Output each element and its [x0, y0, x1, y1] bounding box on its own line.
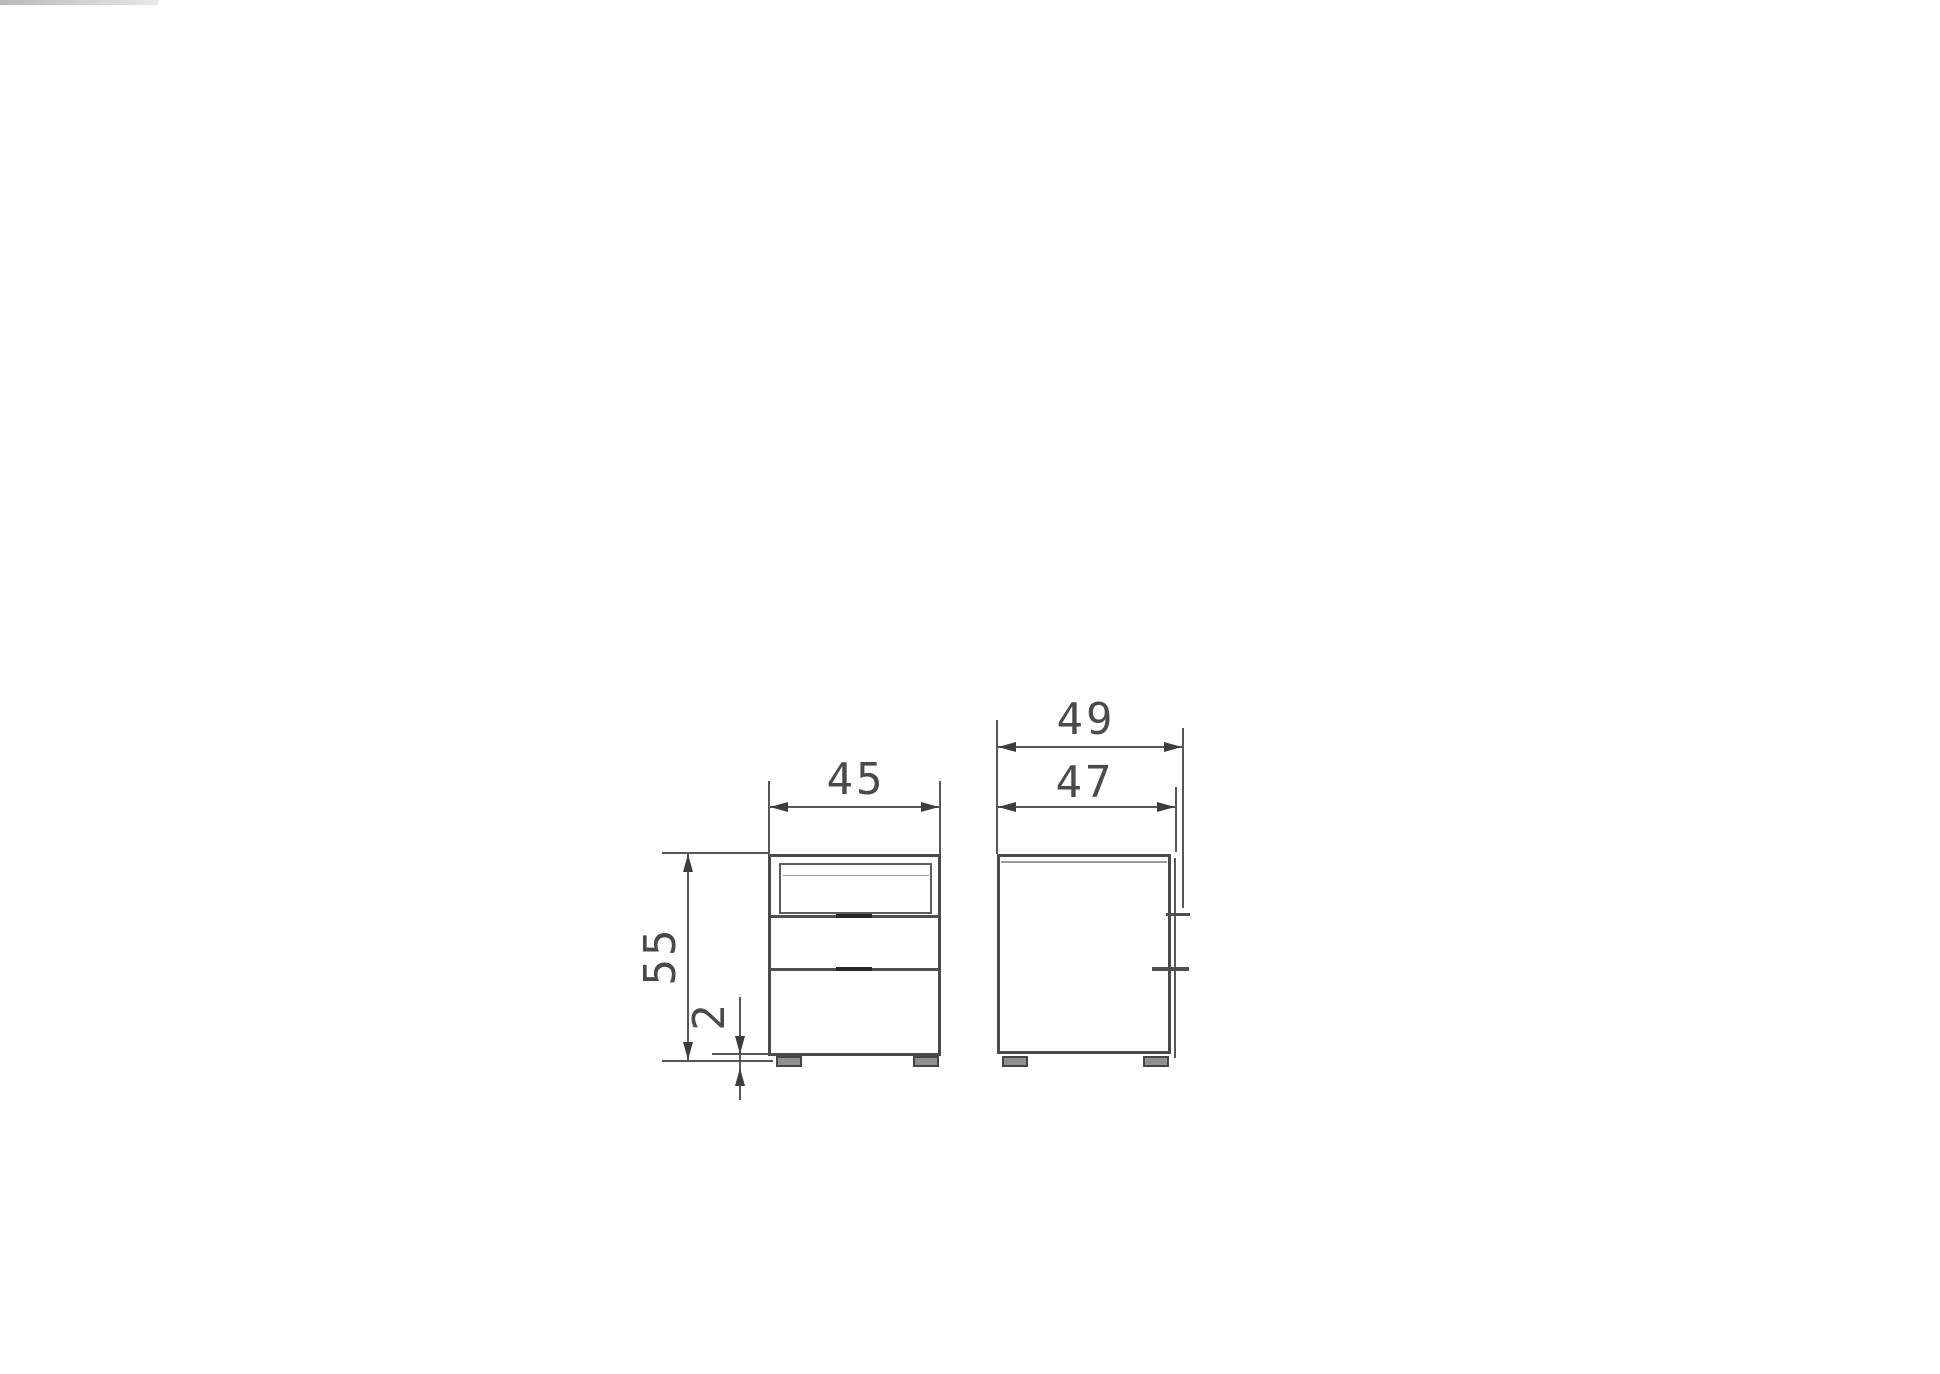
- arrowhead-right-icon: [1157, 802, 1175, 812]
- extension-line-right: [1175, 787, 1177, 852]
- dimension-label-depth-body: 47: [1041, 763, 1129, 803]
- technical-drawing-canvas: 45 55 2 49 47: [0, 0, 1940, 1374]
- dimension-depth-body: 47: [0, 0, 1940, 1374]
- arrowhead-left-icon: [998, 802, 1016, 812]
